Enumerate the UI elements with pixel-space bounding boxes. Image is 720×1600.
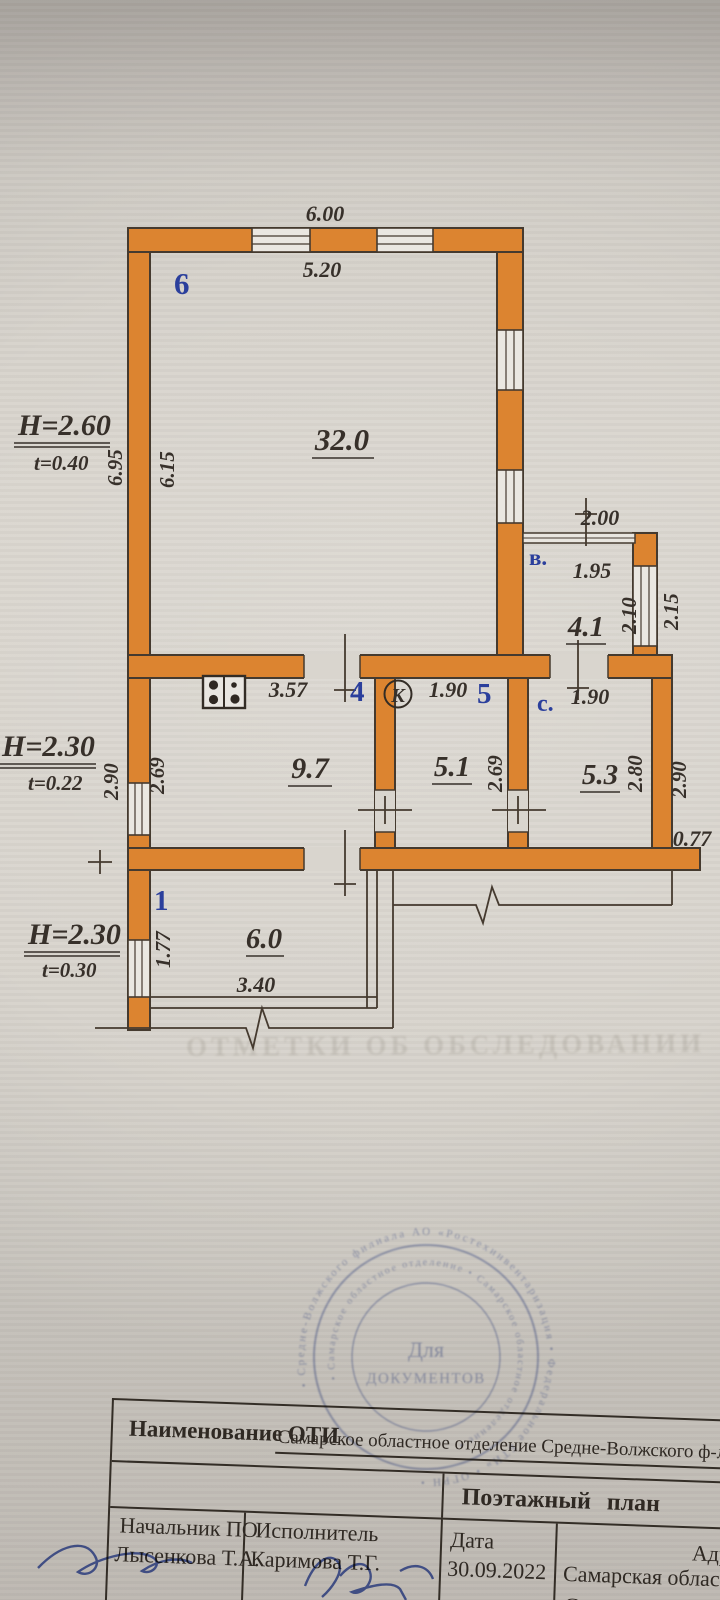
executor-name: Каримова Т.Г.: [250, 1546, 381, 1577]
dim-roomb-inner-w: 1.95: [573, 558, 612, 583]
dim-roomc-width: 1.90: [571, 684, 610, 709]
room5-area: 5.1: [434, 751, 470, 783]
address-district: Советский р-н: [564, 1593, 700, 1600]
cell-date: Дата 30.09.2022: [439, 1520, 558, 1600]
dim-left-inner-4: 2.69: [145, 757, 169, 795]
room-numbers: 6 4 5 с. в. 1: [154, 266, 554, 917]
executor-role: Исполнитель: [255, 1517, 379, 1547]
door-4-veranda: [304, 847, 360, 871]
cell-address: Адрес Самарская область Советский р-н: [554, 1524, 720, 1600]
thickness-note-1: t=0.40: [34, 451, 89, 475]
dim-left-outer-4: 2.90: [99, 763, 123, 801]
thickness-note-2: t=0.22: [28, 771, 83, 795]
room4-area: 9.7: [291, 752, 330, 785]
oti-value: Самарское областное отделение Средне-Вол…: [275, 1427, 720, 1472]
thickness-note-3: t=0.30: [42, 958, 97, 982]
dim-room1-width: 3.40: [236, 972, 276, 997]
light-partition-wall: [523, 533, 635, 543]
height-note-2: Н=2.30: [1, 730, 95, 763]
dim-roomb-outer-w: 2.00: [580, 505, 620, 530]
cell-executor: Исполнитель Каримова Т.Г.: [242, 1513, 443, 1600]
dim-top-outer: 6.00: [306, 201, 345, 226]
dim-roomb-inner-h: 2.10: [617, 597, 641, 635]
roomc-area: 5.3: [582, 759, 618, 791]
room4-number: 4: [350, 676, 365, 708]
dim-left-inner-6: 6.15: [155, 451, 179, 488]
break-line-porch: [393, 887, 672, 923]
plan-labels: 6.00 5.20 32.0 6.95 6.15 Н=2.60 t=0.40 Н…: [1, 201, 712, 997]
room5-number: 5: [477, 678, 492, 710]
room6-number: 6: [174, 266, 190, 301]
dim-roomb-outer-h: 2.15: [659, 593, 683, 631]
dim-room5-height: 2.69: [483, 755, 507, 793]
door-b-c: [550, 654, 608, 679]
date-label: Дата: [450, 1527, 495, 1555]
address-label: Адрес: [691, 1540, 720, 1568]
window-top-1: [252, 228, 310, 252]
window-left-veranda: [128, 940, 150, 997]
veranda-outline: [95, 870, 672, 1048]
floor-plan: К 6.00 5.20 32.0 6.95 6.15 Н=2.60 t=0.40…: [0, 0, 720, 1600]
cell-chief: Начальник ПО Лысенкова Т.А.: [106, 1508, 246, 1600]
window-top-2: [377, 228, 433, 252]
roomc-letter: с.: [537, 691, 554, 717]
dim-left-outer-6: 6.95: [103, 449, 127, 486]
window-right-upper: [497, 330, 523, 390]
title-block-table: Наименование ОТИ Самарское областное отд…: [104, 1398, 720, 1600]
address-region: Самарская область: [563, 1561, 720, 1593]
room6-area: 32.0: [314, 422, 369, 457]
dim-kitchen-width: 3.57: [268, 677, 309, 702]
room1-number: 1: [154, 885, 169, 917]
room1-area: 6.0: [246, 923, 282, 955]
chief-role: Начальник ПО: [119, 1512, 258, 1543]
roomb-letter: в.: [529, 545, 547, 570]
window-right-lower: [497, 470, 523, 523]
boiler-letter: К: [390, 685, 406, 707]
capital-walls: [128, 228, 700, 1030]
roomb-area: 4.1: [567, 611, 604, 643]
height-note-3: Н=2.30: [27, 918, 121, 951]
date-value: 30.09.2022: [447, 1556, 547, 1585]
dim-top-inner: 5.20: [303, 257, 342, 282]
dim-wall-extension: 0.77: [673, 826, 713, 851]
dim-room1-height: 1.77: [151, 930, 175, 968]
height-note-1: Н=2.60: [17, 409, 111, 442]
dim-roomc-outer-h: 2.90: [667, 761, 691, 799]
chief-name: Лысенкова Т.А.: [114, 1541, 260, 1572]
stove-icon: [203, 676, 245, 708]
dim-roomc-inner-h: 2.80: [623, 755, 647, 793]
dim-room5-width: 1.90: [429, 677, 468, 702]
photographed-floor-plan-page: ОТМЕТКИ ОБ ОБСЛЕДОВАНИИ: [0, 0, 720, 1600]
